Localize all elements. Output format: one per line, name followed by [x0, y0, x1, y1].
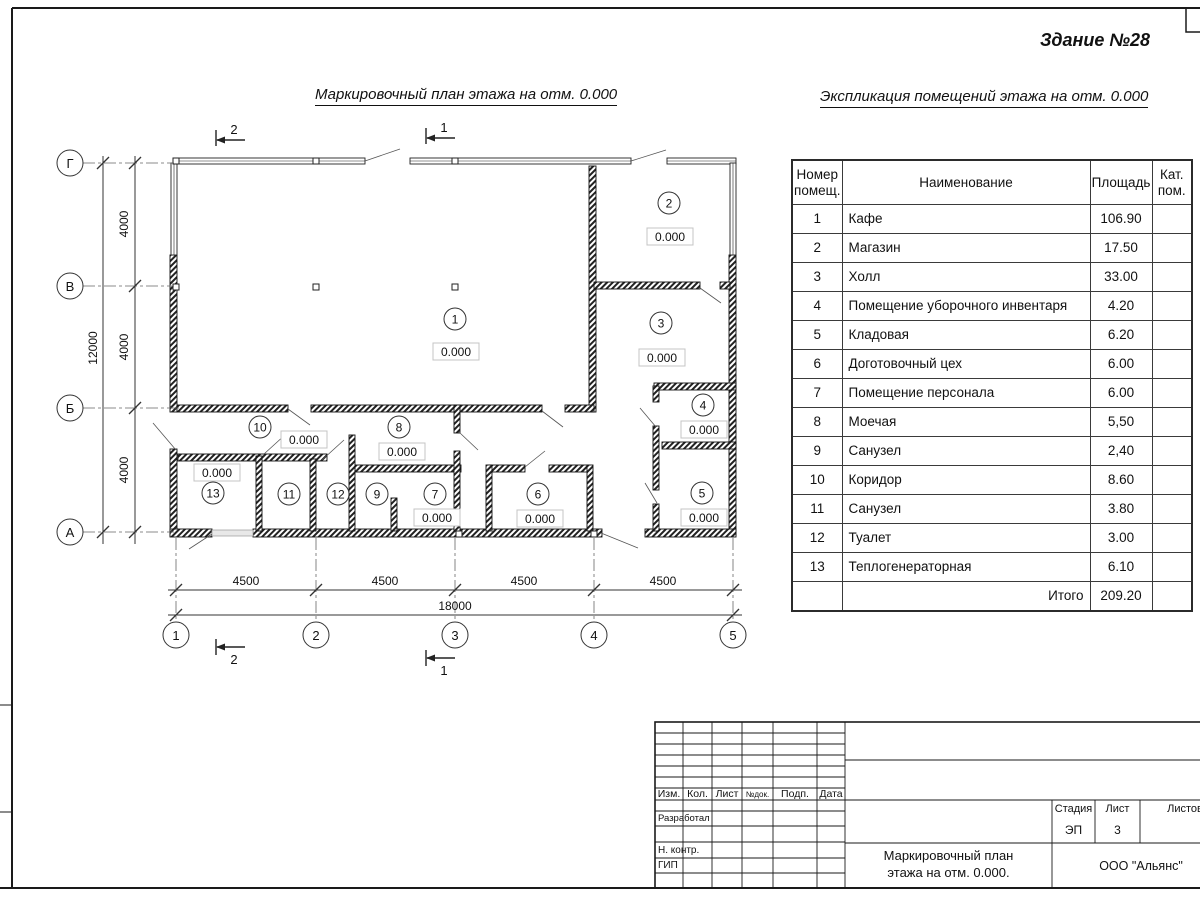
cell-num: 8	[792, 408, 842, 437]
cell-area: 3.00	[1090, 524, 1152, 553]
cell-area: 8.60	[1090, 466, 1152, 495]
room-number: 2	[666, 197, 673, 211]
cell-num: 6	[792, 350, 842, 379]
room-number: 9	[374, 488, 381, 502]
cell-area: 33.00	[1090, 263, 1152, 292]
cell-num: 10	[792, 466, 842, 495]
cell-num: 7	[792, 379, 842, 408]
cell-name: Холл	[842, 263, 1090, 292]
room-number: 5	[699, 487, 706, 501]
header-category: Кат. пом.	[1152, 160, 1192, 205]
titleblock-col-data: Дата	[817, 788, 845, 800]
elevation-value: 0.000	[289, 433, 319, 447]
header-room-number: Номер помещ.	[792, 160, 842, 205]
axis-lines	[83, 163, 733, 622]
axis-label-g: Г	[66, 156, 73, 171]
elevation-value: 0.000	[422, 511, 452, 525]
dimension-lines	[97, 156, 742, 621]
section-mark-2-bottom: 2	[230, 652, 237, 667]
section-mark-2-top: 2	[230, 122, 237, 137]
plan-title: Маркировочный план этажа на отм. 0.000	[315, 86, 617, 103]
titleblock-stage-value: ЭП	[1052, 817, 1095, 843]
cell-cat	[1152, 495, 1192, 524]
titleblock-col-list: Лист	[712, 788, 742, 800]
explication-table: Номер помещ. Наименование Площадь Кат. п…	[791, 159, 1193, 612]
table-header-row: Номер помещ. Наименование Площадь Кат. п…	[792, 160, 1192, 205]
table-row: 5Кладовая6.20	[792, 321, 1192, 350]
cell-area: 106.90	[1090, 205, 1152, 234]
axis-label-2: 2	[312, 628, 319, 643]
cell-area: 2,40	[1090, 437, 1152, 466]
elevation-value: 0.000	[202, 466, 232, 480]
header-area: Площадь	[1090, 160, 1152, 205]
cell-area: 5,50	[1090, 408, 1152, 437]
table-row: 8Моечая5,50	[792, 408, 1192, 437]
section-mark-1-top: 1	[440, 120, 447, 135]
cell-cat	[1152, 408, 1192, 437]
header-room-name: Наименование	[842, 160, 1090, 205]
explication-title: Экспликация помещений этажа на отм. 0.00…	[820, 88, 1148, 105]
axis-label-4: 4	[590, 628, 597, 643]
cell-area: 6.00	[1090, 379, 1152, 408]
titleblock-sheet-label: Лист	[1095, 800, 1140, 817]
table-row: 2Магазин17.50	[792, 234, 1192, 263]
cell-cat	[1152, 292, 1192, 321]
cell-name: Помещение уборочного инвентаря	[842, 292, 1090, 321]
table-row: 4Помещение уборочного инвентаря4.20	[792, 292, 1192, 321]
cell-num: 4	[792, 292, 842, 321]
cell-name: Кладовая	[842, 321, 1090, 350]
cell-num: 3	[792, 263, 842, 292]
cell-cat	[1152, 466, 1192, 495]
room-number: 3	[658, 317, 665, 331]
cell-area: 17.50	[1090, 234, 1152, 263]
titleblock-row-ncontr: Н. контр.	[658, 842, 744, 858]
axis-bubbles: Г В Б А 1 2 3 4 5	[57, 150, 746, 648]
dim-left-3: 4000	[117, 456, 131, 483]
room-number: 8	[396, 421, 403, 435]
cell-name: Доготовочный цех	[842, 350, 1090, 379]
cell-name: Туалет	[842, 524, 1090, 553]
cell-area: 4.20	[1090, 292, 1152, 321]
total-label: Итого	[842, 582, 1090, 612]
room-number: 4	[700, 399, 707, 413]
room-number: 12	[331, 488, 345, 502]
cell-name: Санузел	[842, 495, 1090, 524]
cell-cat	[1152, 437, 1192, 466]
cell-cat	[1152, 321, 1192, 350]
axis-label-a: А	[66, 525, 75, 540]
room-number: 13	[206, 487, 220, 501]
room-number: 6	[535, 488, 542, 502]
cell-cat	[1152, 234, 1192, 263]
table-row: 3Холл33.00	[792, 263, 1192, 292]
cell-num: 11	[792, 495, 842, 524]
table-total-row: Итого 209.20	[792, 582, 1192, 612]
titleblock-doc-title-line1: Маркировочный план	[845, 847, 1052, 863]
cell-num: 12	[792, 524, 842, 553]
elevation-value: 0.000	[525, 512, 555, 526]
elevation-value: 0.000	[689, 423, 719, 437]
titleblock-col-kol: Кол.	[683, 788, 712, 800]
table-row: 11Санузел3.80	[792, 495, 1192, 524]
cell-area: 6.10	[1090, 553, 1152, 582]
titleblock-col-podp: Подп.	[773, 788, 817, 800]
dim-bottom-total: 18000	[438, 599, 472, 613]
cell-num: 9	[792, 437, 842, 466]
dim-bottom-1: 4500	[233, 574, 260, 588]
titleblock-row-developed: Разработал	[658, 811, 744, 826]
axis-label-b: Б	[66, 401, 75, 416]
cell-num: 2	[792, 234, 842, 263]
cell-name: Теплогенераторная	[842, 553, 1090, 582]
axis-label-v: В	[66, 279, 75, 294]
drawing-sheet: { "sheet": { "building_title": "Здание №…	[0, 0, 1200, 900]
cell-name: Кафе	[842, 205, 1090, 234]
section-marks: 2 1 2 1	[216, 120, 455, 678]
table-row: 6Доготовочный цех6.00	[792, 350, 1192, 379]
building-title: Здание №28	[1040, 30, 1150, 51]
total-value: 209.20	[1090, 582, 1152, 612]
door-threshold	[212, 530, 253, 536]
cell-num: 1	[792, 205, 842, 234]
cell-num: 13	[792, 553, 842, 582]
elevation-marks: 0.000 0.000 0.000 0.000 0.000 0.000 0.00…	[194, 228, 727, 527]
room-number: 1	[452, 313, 459, 327]
titleblock-sheet-value: 3	[1095, 817, 1140, 843]
room-number: 7	[432, 488, 439, 502]
table-row: 7Помещение персонала6.00	[792, 379, 1192, 408]
titleblock-col-ndok: №док.	[742, 788, 773, 800]
cell-area: 3.80	[1090, 495, 1152, 524]
cell-name: Коридор	[842, 466, 1090, 495]
table-row: 13Теплогенераторная6.10	[792, 553, 1192, 582]
cell-area: 6.20	[1090, 321, 1152, 350]
elevation-value: 0.000	[441, 345, 471, 359]
dim-left-2: 4000	[117, 333, 131, 360]
elevation-value: 0.000	[689, 511, 719, 525]
room-number: 11	[283, 488, 296, 502]
cell-name: Санузел	[842, 437, 1090, 466]
cell-name: Моечая	[842, 408, 1090, 437]
section-mark-1-bottom: 1	[440, 663, 447, 678]
dim-left-1: 4000	[117, 210, 131, 237]
cell-cat	[1152, 379, 1192, 408]
titleblock-stage-label: Стадия	[1052, 800, 1095, 817]
titleblock-row-gip: ГИП	[658, 858, 744, 873]
table-row: 1Кафе106.90	[792, 205, 1192, 234]
table-row: 12Туалет3.00	[792, 524, 1192, 553]
cell-name: Помещение персонала	[842, 379, 1090, 408]
titleblock-doc-title-line2: этажа на отм. 0.000.	[845, 864, 1052, 880]
room-number: 10	[253, 421, 267, 435]
cell-num	[792, 582, 842, 612]
elevation-value: 0.000	[387, 445, 417, 459]
axis-label-3: 3	[451, 628, 458, 643]
cell-area: 6.00	[1090, 350, 1152, 379]
table-row: 9Санузел2,40	[792, 437, 1192, 466]
elevation-value: 0.000	[647, 351, 677, 365]
dim-left-total: 12000	[86, 331, 100, 365]
cell-cat	[1152, 553, 1192, 582]
titleblock-sheets-label: Листов	[1140, 800, 1200, 817]
dim-bottom-4: 4500	[650, 574, 677, 588]
axis-label-1: 1	[172, 628, 179, 643]
cell-cat	[1152, 263, 1192, 292]
cell-cat	[1152, 524, 1192, 553]
elevation-value: 0.000	[655, 230, 685, 244]
axis-label-5: 5	[729, 628, 736, 643]
cell-num: 5	[792, 321, 842, 350]
dim-bottom-3: 4500	[511, 574, 538, 588]
cell-cat	[1152, 350, 1192, 379]
cell-name: Магазин	[842, 234, 1090, 263]
dim-bottom-2: 4500	[372, 574, 399, 588]
cell-cat	[1152, 582, 1192, 612]
table-row: 10Коридор8.60	[792, 466, 1192, 495]
cell-cat	[1152, 205, 1192, 234]
titleblock-company: ООО "Альянс"	[1052, 843, 1200, 888]
titleblock-col-izm: Изм.	[655, 788, 683, 800]
